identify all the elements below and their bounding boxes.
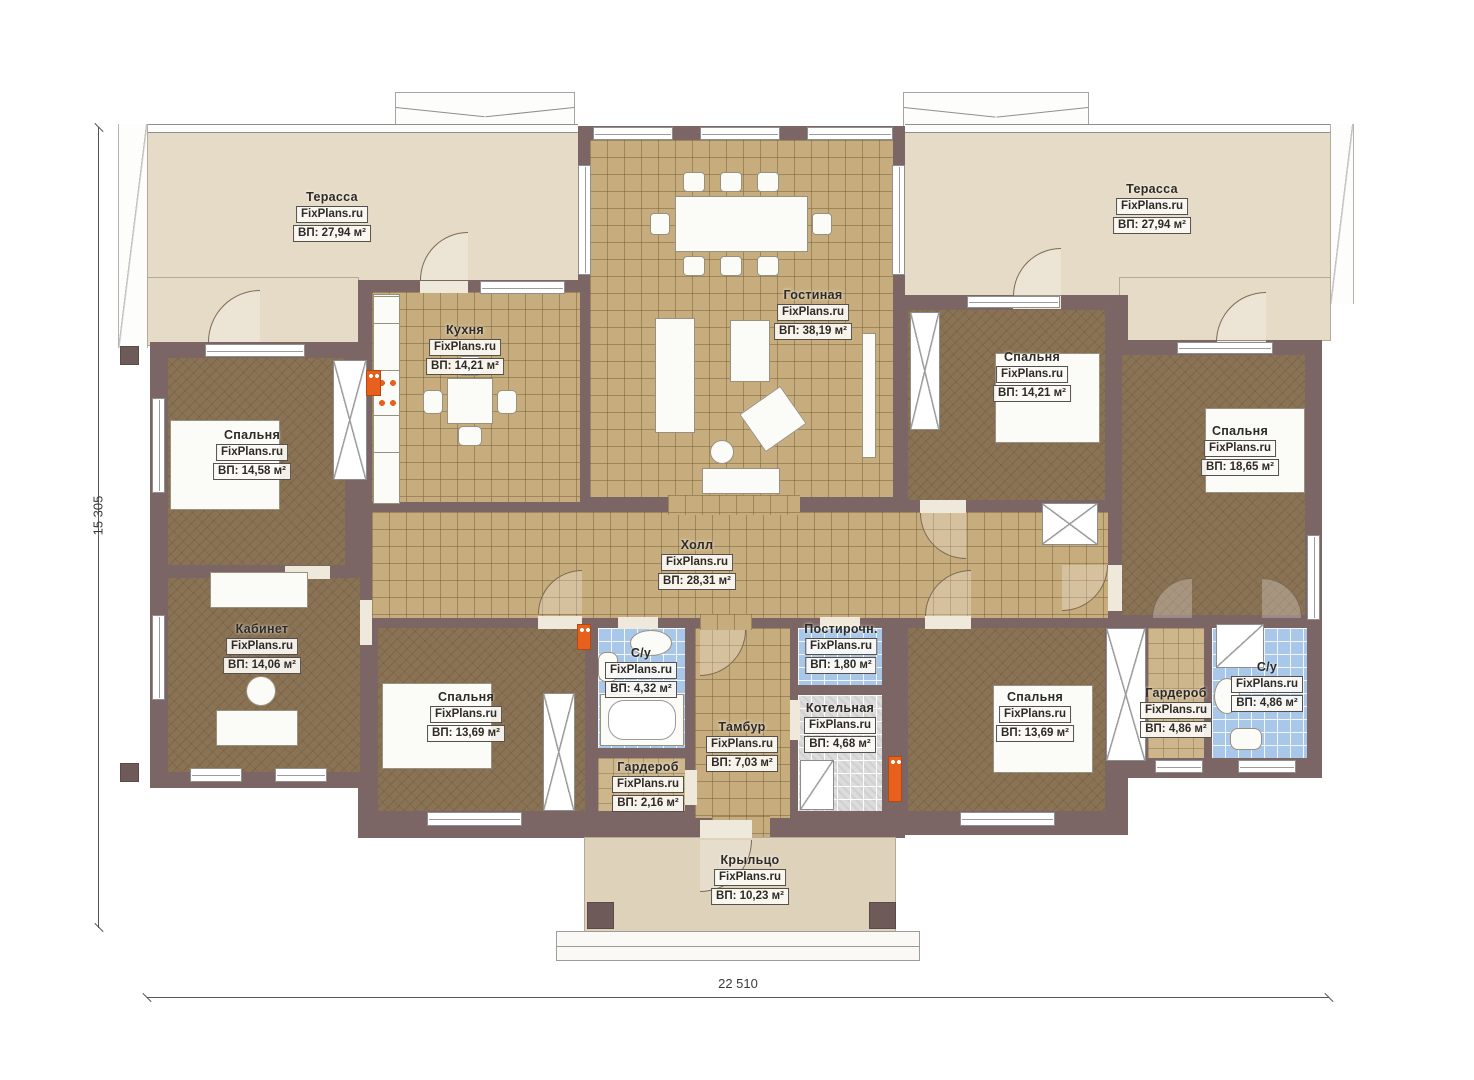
fridge (373, 452, 400, 504)
office-sofa (210, 572, 308, 608)
window-bedroom-far-right (1307, 535, 1320, 620)
island-chair (423, 390, 443, 414)
dining-chair (757, 172, 779, 192)
door-opening-laundry (820, 617, 860, 629)
window-living-left (578, 165, 591, 275)
dimension-height-label: 15 305 (91, 466, 106, 566)
toilet (598, 652, 618, 682)
radiator (366, 370, 381, 396)
window-bedroom-bottom-left (427, 812, 522, 826)
door-opening-hall-far-bedroom (1108, 565, 1122, 611)
window-bedroom-left (152, 398, 165, 493)
shower (1216, 624, 1264, 668)
side-table (710, 440, 734, 464)
door-opening-office (360, 600, 372, 645)
bed (995, 353, 1100, 443)
dimension-width-label: 22 510 (688, 976, 788, 991)
dimension-line-horizontal (147, 997, 1329, 998)
door-opening-hall-bedroom-bottom-right (925, 616, 971, 629)
closet-bedroom-left (333, 360, 367, 480)
porch-post-right (869, 902, 896, 929)
kitchen-sink (373, 296, 400, 324)
living-hall-opening (668, 495, 800, 515)
dimension-tick (94, 923, 103, 932)
terrace-left-floor (148, 130, 578, 280)
radiator (577, 624, 591, 650)
radiator (888, 756, 902, 802)
window-bedroom-bottom-right (960, 812, 1055, 826)
floor-plan: Терасса FixPlans.ru ВП: 27,94 м² Терасса… (0, 0, 1474, 1080)
coffee-table (730, 320, 770, 382)
island-chair (458, 426, 482, 446)
window-living-1 (593, 127, 673, 140)
office-chair (246, 676, 276, 706)
window-bedroom-left-top (205, 344, 305, 357)
hall-vestibule-opening (700, 614, 752, 630)
door-opening-kitchen-terrace (420, 281, 468, 293)
toilet (1230, 728, 1262, 750)
bathtub (600, 694, 684, 746)
door-opening-boiler (790, 700, 800, 740)
window-living-right (892, 165, 905, 275)
roof-overhang-right (1330, 124, 1354, 304)
bed (1205, 408, 1305, 493)
window-living-2 (700, 127, 780, 140)
window-office-bottom-1 (190, 768, 242, 782)
bed (170, 420, 280, 510)
desk (216, 710, 298, 746)
attic-ladder (1042, 503, 1098, 545)
media-console (702, 468, 780, 494)
dining-chair (757, 256, 779, 276)
entrance-canopy-left (395, 92, 575, 128)
entrance-canopy-right (903, 92, 1089, 128)
wardrobe-left-floor (598, 758, 685, 811)
door-opening-wardrobe-left (685, 770, 697, 805)
bathtub-basin (608, 700, 676, 740)
bed (993, 685, 1093, 773)
closet-bedroom-right (910, 312, 940, 430)
window-bathroom-right (1238, 760, 1296, 773)
dining-chair (720, 256, 742, 276)
living-floor (590, 140, 893, 497)
closet-bedroom-bottom-left (543, 693, 575, 811)
closet-bedroom-bottom-right (1106, 628, 1146, 761)
window-office-bottom-2 (275, 768, 327, 782)
boiler-unit (800, 760, 834, 810)
island-chair (497, 390, 517, 414)
dining-chair (720, 172, 742, 192)
porch-steps (556, 931, 920, 961)
wardrobe-right-floor (1148, 628, 1204, 758)
terrace-right-floor (905, 130, 1330, 298)
island-chair (458, 356, 482, 376)
window-kitchen (480, 281, 565, 294)
tv-stand (862, 333, 876, 458)
bed (382, 683, 492, 769)
laundry-floor (798, 628, 882, 685)
dining-chair (683, 256, 705, 276)
terrace-right-railing (905, 124, 1330, 133)
dining-chair (812, 213, 832, 235)
dining-chair (683, 172, 705, 192)
sink (1214, 678, 1240, 714)
porch-post-left (587, 902, 614, 929)
window-office (152, 615, 165, 700)
sink (630, 630, 672, 656)
dining-table (675, 196, 808, 252)
door-opening-porch (700, 820, 752, 838)
terrace-post-top-left (120, 346, 139, 365)
dimension-tick (94, 123, 103, 132)
window-bedroom-right-top (967, 296, 1060, 308)
hall-floor (372, 512, 1108, 618)
door-opening-hall-bedroom-bottom-left (538, 616, 582, 629)
window-bedroom-far-right-top (1177, 342, 1273, 354)
window-wardrobe-right (1155, 760, 1203, 773)
door-opening-bathroom-left (618, 617, 658, 629)
kitchen-island (447, 378, 493, 424)
terrace-left-railing (148, 124, 578, 133)
window-living-3 (807, 127, 893, 140)
roof-overhang-left (118, 124, 148, 348)
door-opening-hall-bedroom-right (920, 500, 966, 513)
sofa (655, 318, 695, 433)
terrace-post-bottom-left (120, 763, 139, 782)
dining-chair (650, 213, 670, 235)
